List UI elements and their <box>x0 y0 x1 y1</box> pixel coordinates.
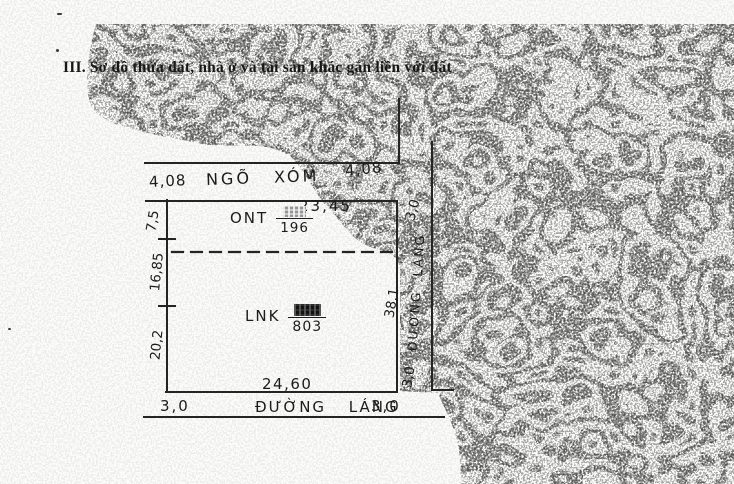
zone-lnk-fraction: 803 <box>288 304 326 335</box>
right-road-outer-line <box>432 142 453 390</box>
parcel-bottom-length-label: 24,60 <box>262 375 312 393</box>
redacted-area-ont <box>283 206 306 217</box>
zone-ont: ONT 196 <box>230 206 313 236</box>
zone-ont-area-value: 196 <box>276 218 313 236</box>
zone-lnk-code: LNK <box>245 304 280 325</box>
bottom-road-width-right-label: 3,0 <box>371 397 401 415</box>
zone-lnk: LNK 803 <box>245 304 326 335</box>
alley-name-label: NGÕ XÓM <box>206 166 320 189</box>
zone-ont-fraction: 196 <box>276 206 313 236</box>
redacted-area-lnk <box>294 304 321 316</box>
scanned-document-page: III. Sơ đồ thửa đất, nhà ở và tài sản kh… <box>0 0 734 484</box>
alley-width-left-label: 4,08 <box>149 171 187 191</box>
bottom-road-width-left-label: 3,0 <box>160 397 190 415</box>
zone-ont-code: ONT <box>230 206 268 227</box>
zone-lnk-area-value: 803 <box>288 317 326 335</box>
alley-north-line <box>145 99 399 163</box>
